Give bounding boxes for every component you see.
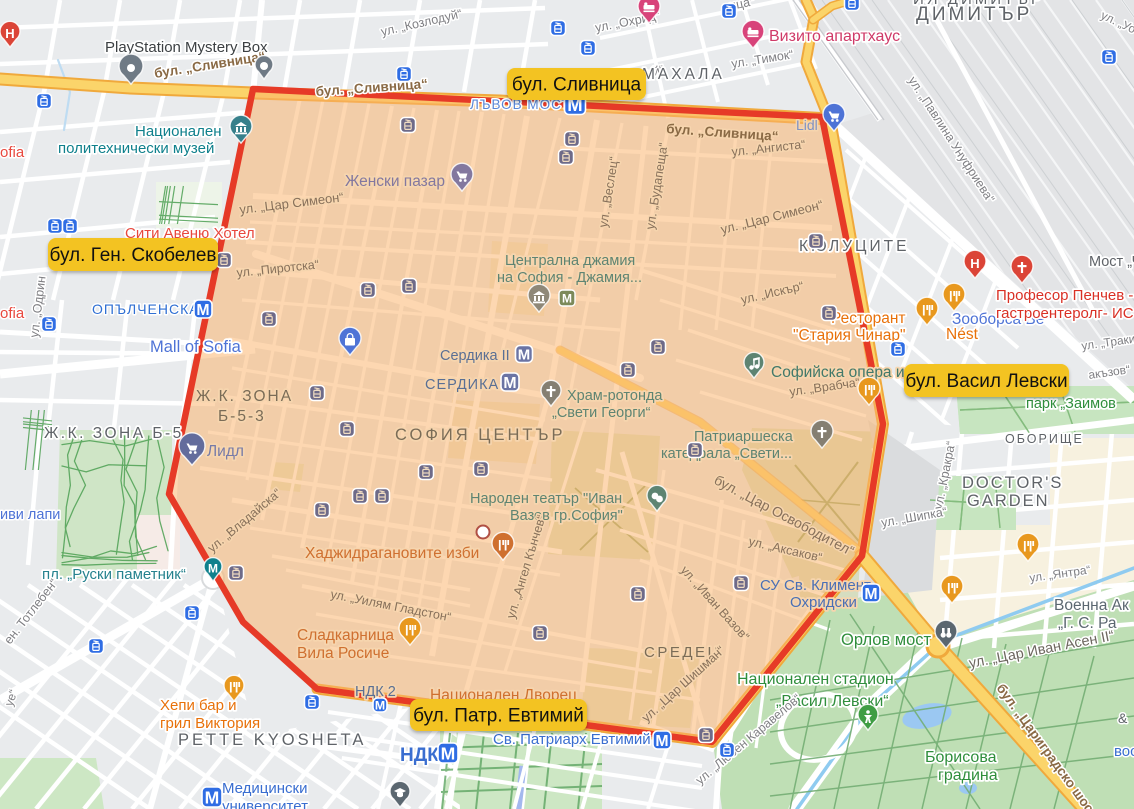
svg-text:пл. „Руски паметник“: пл. „Руски паметник“ [42, 566, 186, 583]
svg-text:M: M [441, 744, 456, 764]
svg-text:Nést: Nést [946, 326, 979, 343]
svg-text:Военна Ак: Военна Ак [1054, 597, 1129, 614]
svg-text:Вила Росиче: Вила Росиче [297, 645, 389, 662]
svg-text:на София - Джамия...: на София - Джамия... [497, 270, 642, 286]
svg-text:СУ Св. Климент: СУ Св. Климент [760, 577, 871, 594]
svg-text:университет: университет [222, 798, 308, 809]
svg-text:гастроентеролг- ИС: гастроентеролг- ИС [996, 305, 1134, 322]
svg-text:Сердика II: Сердика II [440, 348, 510, 364]
svg-text:M: M [375, 699, 385, 713]
svg-text:M: M [196, 302, 209, 319]
svg-text:бул. Патр. Евтимий: бул. Патр. Евтимий [413, 706, 584, 727]
svg-text:&: & [1118, 710, 1128, 726]
svg-text:Ж.К. ЗОНА Б-5: Ж.К. ЗОНА Б-5 [44, 425, 184, 442]
svg-text:СЕРДИКА: СЕРДИКА [425, 377, 499, 393]
svg-text:Храм-ротонда: Храм-ротонда [567, 388, 663, 404]
svg-text:M: M [655, 733, 668, 750]
svg-text:СОФИЯ ЦЕНТЪР: СОФИЯ ЦЕНТЪР [395, 426, 566, 444]
svg-text:Медицински: Медицински [222, 780, 308, 797]
svg-text:бул. Сливница: бул. Сливница [512, 75, 642, 96]
svg-text:Народен театър "Иван: Народен театър "Иван [470, 491, 622, 507]
svg-text:ofia: ofia [0, 144, 25, 161]
svg-text:Професор Пенчев -: Професор Пенчев - [996, 287, 1133, 304]
svg-text:Вазов гр.София": Вазов гр.София" [510, 508, 623, 524]
svg-text:M: M [562, 292, 572, 306]
svg-text:НДК: НДК [400, 745, 439, 766]
svg-text:Охридски: Охридски [790, 594, 857, 611]
svg-text:DOCTOR'S: DOCTOR'S [962, 474, 1063, 492]
svg-text:бул. Ген. Скобелев: бул. Ген. Скобелев [50, 245, 217, 266]
svg-text:"Стария Чинар": "Стария Чинар" [793, 327, 906, 344]
svg-text:вос: вос [1114, 743, 1134, 760]
svg-text:GARDEN: GARDEN [967, 492, 1050, 510]
svg-text:Патриаршеска: Патриаршеска [694, 429, 794, 445]
svg-text:Борисова: Борисова [925, 749, 997, 766]
svg-text:бул. Васил Левски: бул. Васил Левски [905, 371, 1067, 392]
svg-text:Хепи бар и: Хепи бар и [160, 697, 237, 714]
svg-text:„Свети Георги“: „Свети Георги“ [552, 405, 651, 421]
svg-text:H: H [5, 26, 14, 41]
svg-text:Сладкарница: Сладкарница [297, 627, 394, 644]
svg-text:Мост „Ча: Мост „Ча [1089, 254, 1134, 270]
svg-text:политехнически музей: политехнически музей [58, 140, 214, 157]
svg-text:парк „Заимов: парк „Заимов [1026, 396, 1116, 412]
svg-text:Визито апартхаус: Визито апартхаус [769, 28, 900, 45]
svg-text:Ресторант: Ресторант [831, 310, 905, 327]
svg-text:Ж.К. ЗОНА: Ж.К. ЗОНА [196, 388, 293, 405]
svg-text:Национален стадион: Национален стадион [737, 671, 894, 688]
svg-text:ОПЪЛЧЕНСКА: ОПЪЛЧЕНСКА [92, 301, 200, 317]
svg-text:H: H [970, 256, 979, 271]
svg-text:M: M [518, 347, 530, 364]
svg-text:катедрала „Свети...: катедрала „Свети... [661, 446, 792, 462]
svg-text:НДК 2: НДК 2 [355, 684, 396, 700]
svg-text:ИЯ ДИМИТЪР: ИЯ ДИМИТЪР [913, 0, 1044, 8]
svg-text:Централна джамия: Централна джамия [505, 253, 635, 269]
svg-text:Национален: Национален [135, 123, 222, 140]
svg-text:PETTE KYOSHETA: PETTE KYOSHETA [178, 731, 366, 749]
svg-text:Б-5-3: Б-5-3 [218, 408, 266, 425]
svg-text:Mall of Sofia: Mall of Sofia [150, 338, 242, 356]
svg-text:Лидл: Лидл [207, 443, 244, 460]
svg-text:МАХАЛА: МАХАЛА [642, 66, 725, 83]
svg-text:ОБОРИЩЕ: ОБОРИЩЕ [1005, 432, 1084, 446]
svg-text:M: M [208, 562, 218, 576]
svg-text:Орлов мост: Орлов мост [841, 631, 932, 649]
svg-text:грил Виктория: грил Виктория [160, 715, 260, 732]
svg-text:Lidl: Lidl [796, 117, 818, 133]
svg-text:ofia: ofia [0, 305, 25, 322]
svg-text:M: M [503, 375, 516, 392]
svg-text:Св. Патриарх Евтимий: Св. Патриарх Евтимий [493, 731, 651, 748]
svg-text:градина: градина [938, 767, 998, 784]
svg-text:M: M [205, 788, 220, 808]
svg-text:Женски пазар: Женски пазар [345, 173, 445, 190]
svg-text:M: M [864, 586, 877, 603]
svg-text:Хаджидрагановите изби: Хаджидрагановите изби [305, 545, 479, 562]
svg-text:иви лапи: иви лапи [0, 507, 60, 523]
